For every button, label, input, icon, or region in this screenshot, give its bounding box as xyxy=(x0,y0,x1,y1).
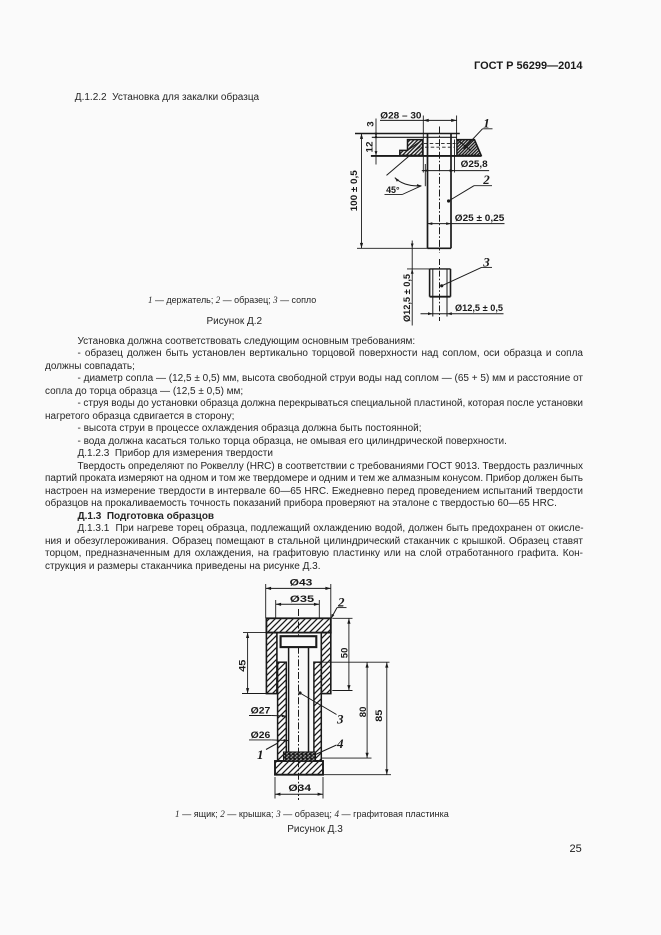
svg-text:100 ± 0,5: 100 ± 0,5 xyxy=(349,170,360,212)
svg-text:3: 3 xyxy=(336,712,344,727)
svg-text:4: 4 xyxy=(336,736,344,751)
svg-text:Ø27: Ø27 xyxy=(251,706,271,717)
svg-text:45: 45 xyxy=(237,659,248,672)
svg-text:80: 80 xyxy=(358,707,369,718)
svg-text:Ø25,8: Ø25,8 xyxy=(461,159,489,170)
svg-text:3: 3 xyxy=(365,121,376,126)
svg-text:50: 50 xyxy=(340,648,351,659)
svg-text:12: 12 xyxy=(364,142,375,153)
svg-text:Ø43: Ø43 xyxy=(290,577,313,588)
svg-text:Ø12,5 ± 0,5: Ø12,5 ± 0,5 xyxy=(455,303,504,314)
svg-text:Ø34: Ø34 xyxy=(288,783,312,794)
svg-text:Ø35: Ø35 xyxy=(290,594,315,605)
svg-text:1: 1 xyxy=(257,747,264,762)
svg-text:Ø12,5 ± 0,5: Ø12,5 ± 0,5 xyxy=(402,273,413,322)
svg-text:85: 85 xyxy=(374,709,385,722)
svg-text:2: 2 xyxy=(482,172,490,187)
svg-text:Ø25 ± 0,25: Ø25 ± 0,25 xyxy=(455,213,505,224)
